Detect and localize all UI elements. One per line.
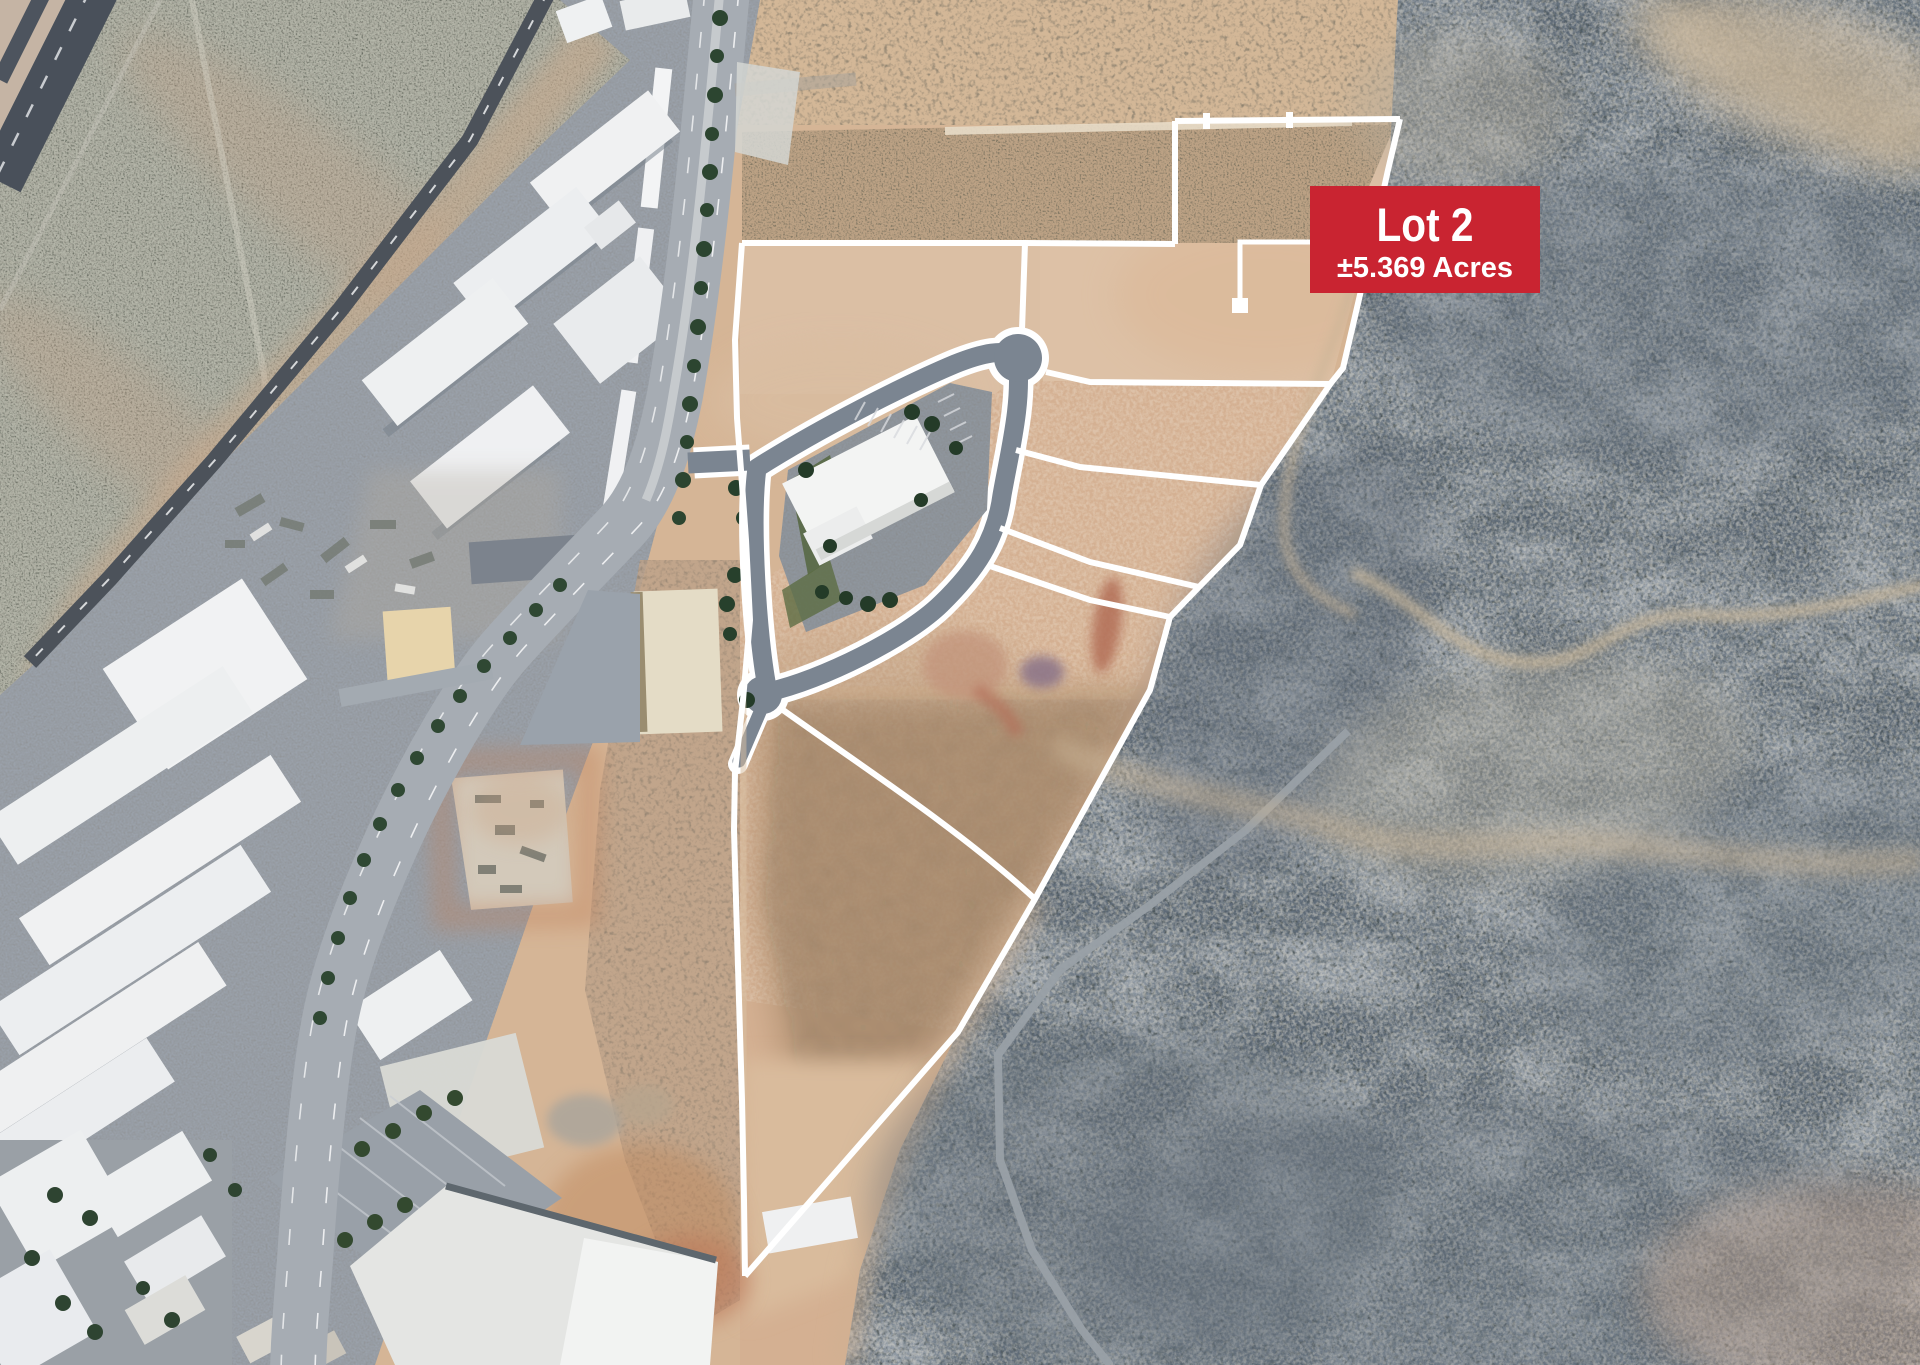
svg-text:±5.369 Acres: ±5.369 Acres xyxy=(1337,252,1513,284)
svg-text:Lot 2: Lot 2 xyxy=(1377,198,1474,251)
